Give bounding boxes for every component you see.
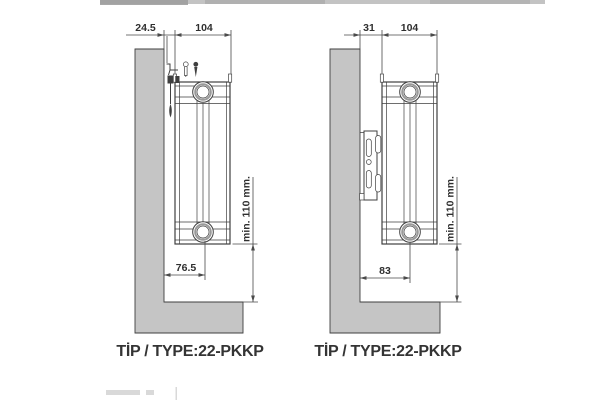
right-bottom-dimension: 83 [360,242,410,283]
mounting-bracket-plate [360,131,381,200]
bracket-tab-top [376,136,381,154]
radiator-side-view-right [380,74,438,244]
bottom-connection-valve [193,222,214,243]
dim-wall-gap-left: 24.5 [135,22,156,34]
left-drawing: 24.5 104 76.5 min. 110 mm. TİP / TYPE:22… [116,22,264,360]
radiator-body [175,82,230,244]
right-drawing: 31 104 83 min. 110 mm. TİP / TYPE:22-PKK… [314,22,462,360]
type-label-right: TİP / TYPE:22-PKKP [314,342,462,360]
top-clip-back-right [380,74,383,82]
radiator-side-view [173,74,231,244]
bottom-connection-valve-right [400,222,421,243]
bracket-foot [360,194,364,201]
top-clip-front [229,74,232,82]
dim-wall-gap-right: 31 [363,22,375,34]
left-height-dimension: min. 110 mm. [233,176,259,302]
dim-depth-left: 104 [195,22,213,34]
dim-min-height-right: min. 110 mm. [445,176,457,242]
dim-min-height-left: min. 110 mm. [241,176,253,242]
dim-depth-right: 104 [401,22,419,34]
radiator-body-right [382,82,437,244]
left-bottom-dimension: 76.5 [164,241,205,280]
cropped-bottom-remnant [106,387,177,400]
wall-plug-icon [183,62,188,77]
top-clip-front-right [436,74,439,82]
cropped-top-band [100,0,545,5]
right-height-dimension: min. 110 mm. [439,176,462,302]
dim-pipe-offset-left: 76.5 [176,262,197,274]
screw-icon [193,62,198,77]
top-connection-valve [193,82,214,103]
radiator-mounting-diagram: 24.5 104 76.5 min. 110 mm. TİP / TYPE:22… [0,0,600,400]
bracket-tab-bottom [376,175,381,193]
top-connection-valve-right [400,82,421,103]
diagram-canvas: 24.5 104 76.5 min. 110 mm. TİP / TYPE:22… [0,0,600,400]
type-label-left: TİP / TYPE:22-PKKP [116,342,264,360]
dim-pipe-offset-right: 83 [379,265,391,277]
